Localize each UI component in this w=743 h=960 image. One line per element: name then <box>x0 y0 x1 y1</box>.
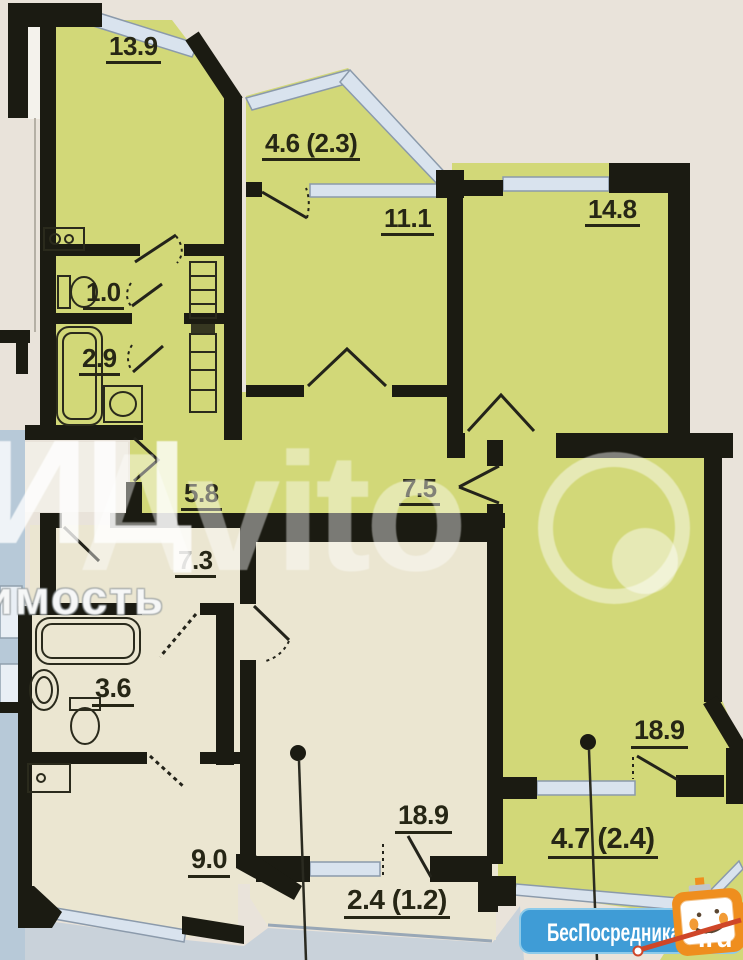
window-room-18-9-center <box>310 862 380 876</box>
area-label-room-9-0: 9.0 <box>188 846 230 878</box>
area-label-hall-7-5: 7.5 <box>399 475 440 506</box>
area-label-wc-1-0: 1.0 <box>83 279 124 310</box>
area-label-balcony-2-4: 2.4 (1.2) <box>344 886 450 919</box>
watermark-avito-circle-icon <box>612 528 678 594</box>
area-label-room-14-8: 14.8 <box>585 196 640 227</box>
area-label-bath-3-6: 3.6 <box>92 675 134 707</box>
area-label-room-11-1: 11.1 <box>381 205 434 236</box>
area-label-balcony-4-7: 4.7 (2.4) <box>548 825 658 859</box>
window-room-11-1 <box>310 184 438 197</box>
area-label-room-18-9-right: 18.9 <box>631 717 688 749</box>
besposrednika-logo: БесПосредника .ru <box>505 870 743 960</box>
area-label-hall-5-8: 5.8 <box>181 480 222 511</box>
window-room-14-8 <box>503 177 609 191</box>
area-label-room-13-9: 13.9 <box>106 33 161 64</box>
section-marker-dot <box>290 745 306 761</box>
floorplan-photo: 13.9 4.6 (2.3) 11.1 14.8 1.0 2.9 5.8 7.5… <box>0 0 743 960</box>
area-label-balcony-4-6: 4.6 (2.3) <box>262 130 360 161</box>
window-room-18-9-right <box>537 781 635 795</box>
area-label-bath-2-9: 2.9 <box>79 345 120 376</box>
area-label-room-18-9-center: 18.9 <box>395 802 452 834</box>
section-marker-dot <box>580 734 596 750</box>
area-label-hall-7-3: 7.3 <box>175 547 216 578</box>
